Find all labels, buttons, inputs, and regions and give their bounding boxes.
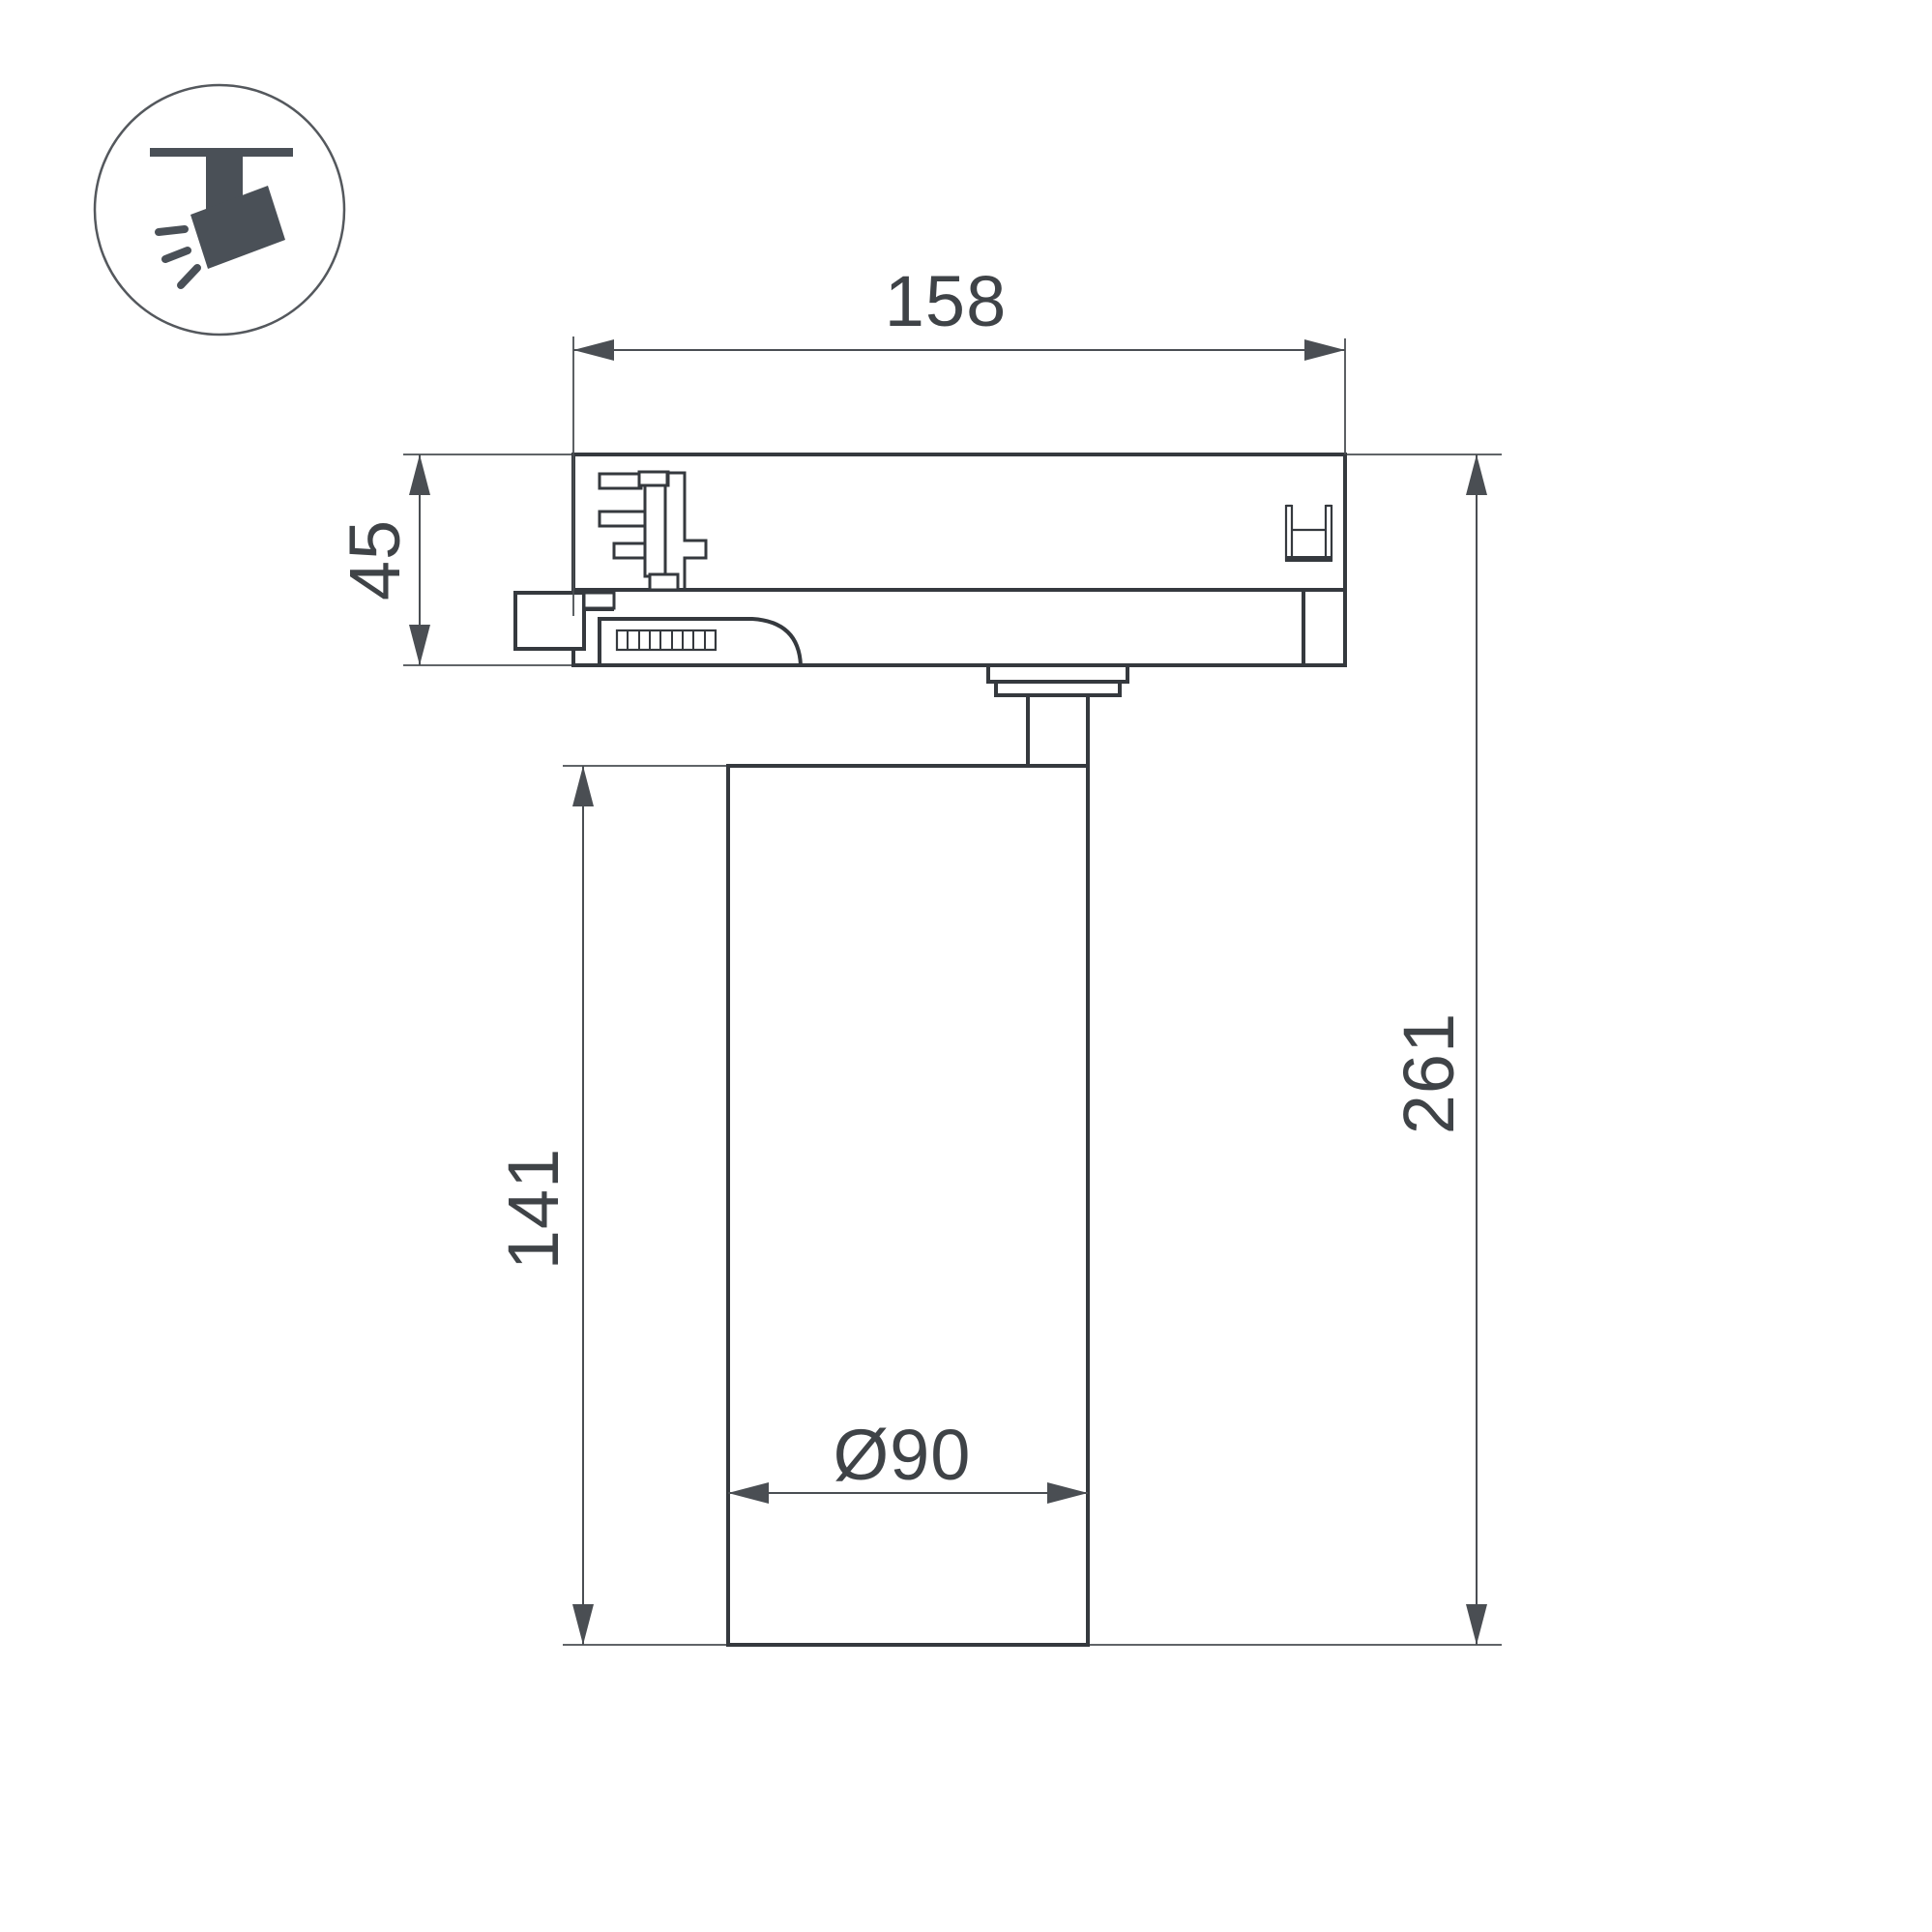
contact-pin [600, 512, 645, 526]
arrowhead [1304, 339, 1345, 361]
track-adapter-housing [573, 454, 1345, 665]
latch-step [584, 593, 614, 608]
technical-drawing: 158 45 141 261 Ø90 [0, 0, 1932, 1932]
contact-pin [600, 474, 641, 488]
arrowhead [409, 454, 430, 495]
swivel-flange-upper [988, 665, 1127, 682]
label-total-height: 261 [1389, 1012, 1469, 1134]
contact-pin [614, 543, 645, 558]
label-body-diameter: Ø90 [834, 1415, 972, 1495]
screw-cap [639, 472, 668, 485]
light-ray [159, 229, 185, 232]
screw-foot [650, 574, 678, 590]
arrowhead [572, 766, 594, 806]
arrowhead [1466, 1604, 1487, 1645]
arrowhead [573, 339, 614, 361]
arrowhead [572, 1604, 594, 1645]
label-adapter-height: 45 [335, 519, 415, 600]
screw-shank [645, 485, 665, 576]
clip-base [1285, 556, 1332, 562]
icon-track-bar [150, 148, 293, 157]
swivel-flange-lower [996, 682, 1120, 695]
arrowhead [1466, 454, 1487, 495]
lamp-neck [1028, 695, 1088, 767]
product-icon-badge [95, 85, 344, 335]
lamp-body-cylinder [728, 766, 1088, 1645]
arrowhead [409, 625, 430, 665]
drawing-page: 158 45 141 261 Ø90 [0, 0, 1932, 1932]
label-body-height: 141 [493, 1148, 573, 1270]
label-track-width: 158 [885, 261, 1007, 341]
